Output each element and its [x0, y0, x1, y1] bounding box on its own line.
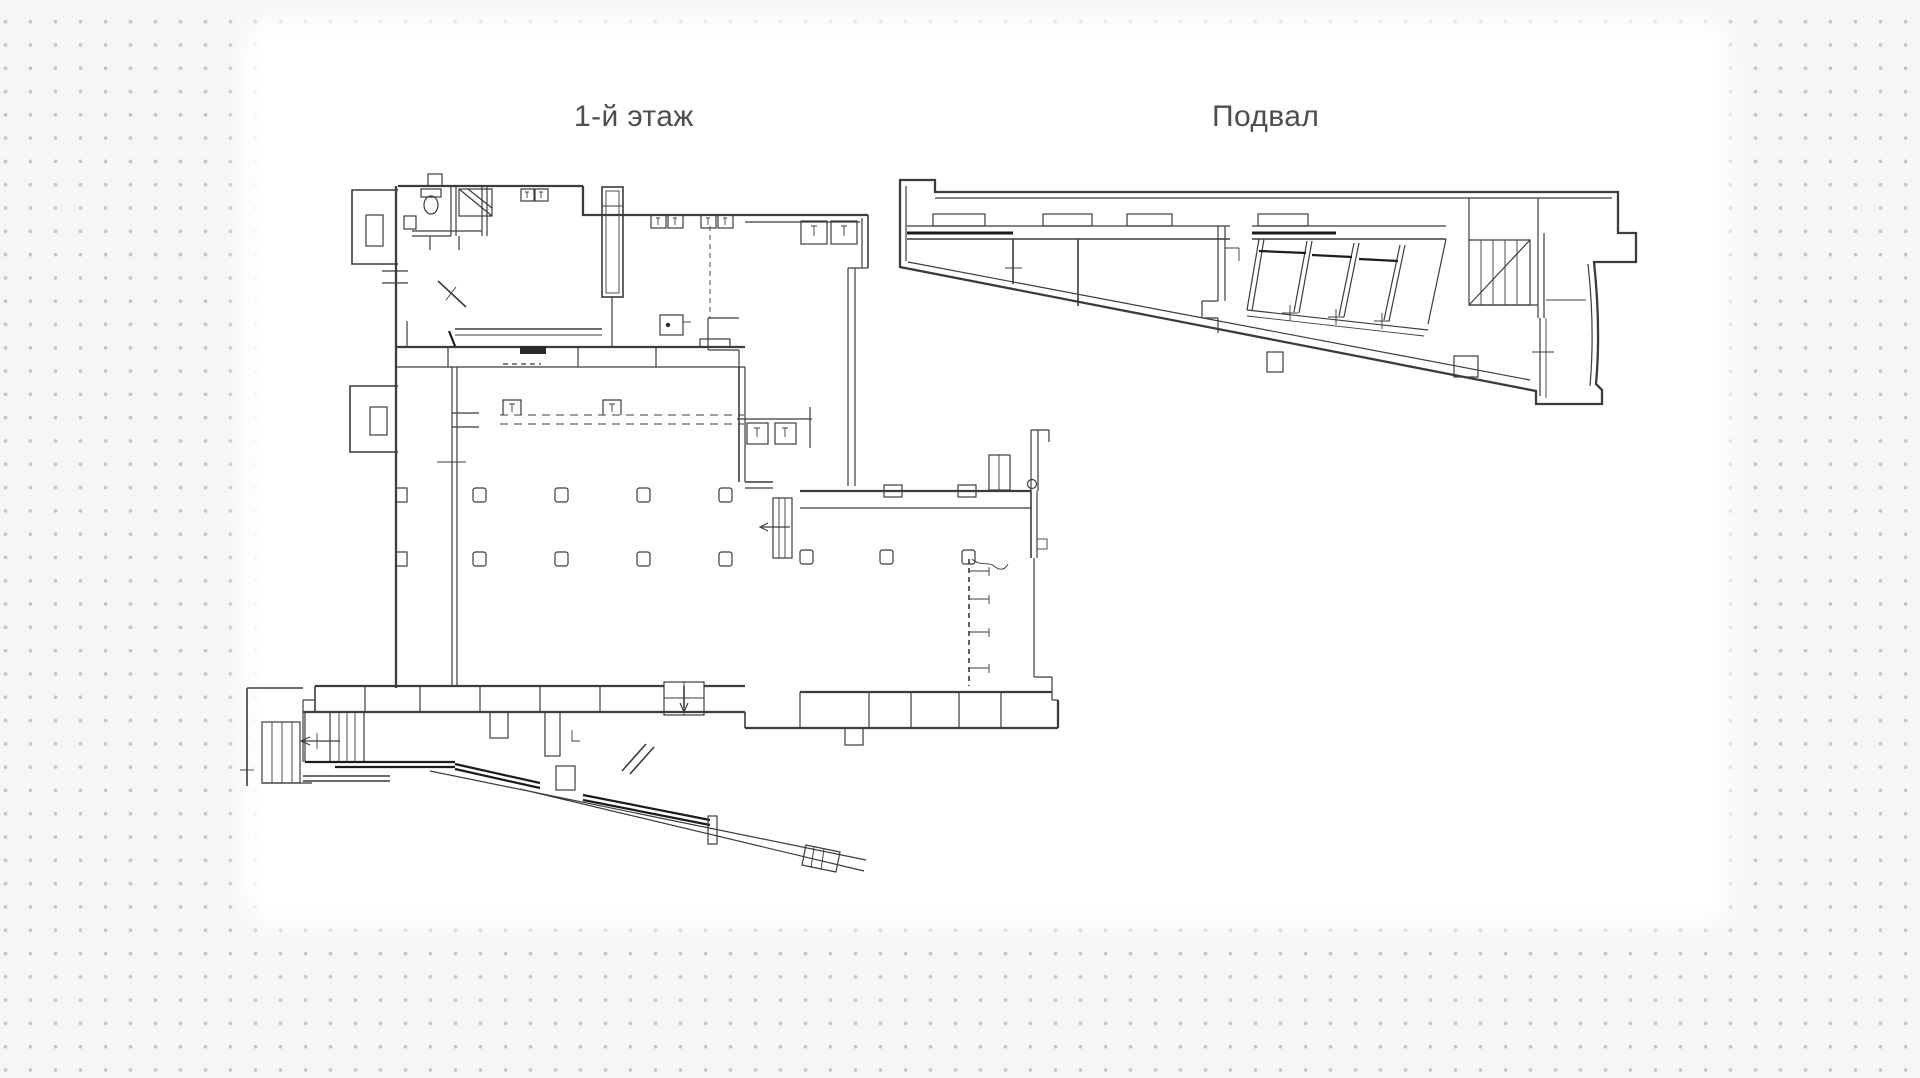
ramp — [430, 744, 866, 872]
first-floor-plan — [240, 174, 1058, 872]
basement-storage-rooms — [1247, 214, 1446, 336]
first-floor-hall — [303, 367, 745, 762]
corner-radiators — [737, 407, 812, 448]
sink-fixture — [404, 216, 416, 229]
basement-plan — [900, 180, 1636, 404]
shaft-access-box — [660, 315, 691, 335]
floor-plans-drawing — [0, 0, 1920, 1078]
entrance-stair — [262, 722, 300, 783]
first-floor-radiators — [521, 189, 857, 244]
radiator-pair — [801, 221, 857, 244]
radiator-pair — [701, 215, 733, 228]
annex-stair — [760, 498, 792, 558]
radiator-pair — [521, 189, 548, 201]
diagonal-door — [438, 281, 466, 307]
first-floor-outer-walls — [350, 174, 868, 688]
ramp-end-stub — [802, 845, 840, 872]
basement-right-rooms — [1267, 198, 1586, 398]
first-floor-upper-block — [382, 187, 710, 347]
toilet-fixture — [421, 189, 441, 214]
radiator-pair — [651, 215, 683, 228]
basement-stairs — [1469, 198, 1538, 305]
first-floor-entrance-ramp — [240, 688, 866, 872]
columns-grid — [396, 488, 732, 566]
ventilation-shaft — [602, 187, 623, 347]
exit-steps-block — [664, 682, 704, 715]
first-floor-annex — [737, 407, 1058, 745]
